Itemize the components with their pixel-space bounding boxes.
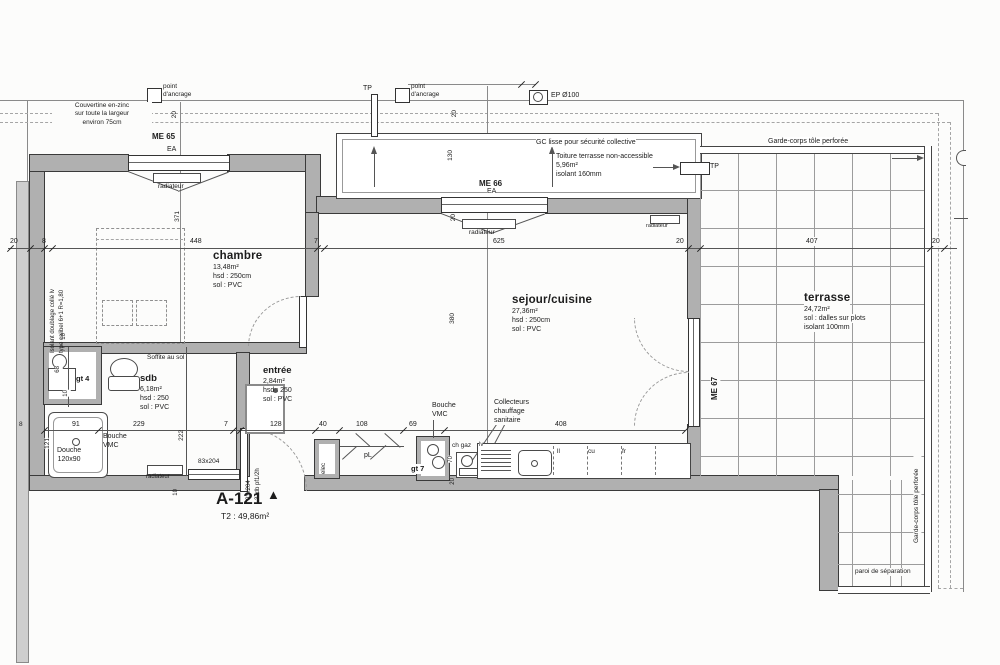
garde-corps-right-label: Garde-corps tôle perforée: [913, 448, 921, 543]
entree-hsd: hsd : 250: [263, 386, 292, 395]
boundary-right: [963, 100, 964, 592]
wall-right-upper: [688, 197, 700, 318]
cu-label: cu: [588, 448, 595, 456]
entree-sol: sol : PVC: [263, 395, 292, 404]
entree-area: 2,84m²: [263, 377, 285, 386]
chambre-sol: sol : PVC: [213, 281, 242, 290]
terrasse-area: 24,72m²: [804, 305, 830, 314]
dim-chain-mid: [44, 430, 685, 431]
ea-label-1: EA: [167, 145, 176, 154]
dim-mid-69: 69: [409, 420, 417, 429]
isolant-line-1: Isolant doublage collé lv: [50, 248, 58, 353]
boiler-dial: [461, 455, 473, 467]
dim-130: 130: [447, 150, 455, 161]
ch-gaz-label: ch gaz: [452, 442, 471, 450]
ep-circle: [533, 92, 543, 102]
boundary-dash-right-2: [950, 122, 951, 588]
dim-371: 371: [174, 211, 182, 222]
dim-top-407: 407: [806, 237, 818, 246]
dim-mid-128: 128: [270, 420, 282, 429]
me65-label: ME 65: [152, 132, 175, 142]
tp-pipe-1: [371, 94, 378, 137]
sdb-sol: sol : PVC: [140, 403, 169, 412]
dim-top-8: 8: [42, 237, 46, 246]
dim-mid-91: 91: [72, 420, 80, 429]
couvertine-note: Couvertine en-zinc sur toute la largeur …: [52, 102, 152, 127]
guardrail-bottom: [838, 586, 930, 594]
douche-label: Douche 120x90: [57, 446, 81, 464]
tp-label-1: TP: [363, 84, 372, 93]
bed-fold-line: [96, 239, 183, 240]
paroi-label: paroi de séparation: [855, 568, 911, 576]
boundary-dash-bottom: [938, 588, 963, 589]
guardrail-right: [924, 146, 932, 592]
lv-label: lv: [479, 442, 483, 450]
slope-arrow-2: [552, 153, 553, 187]
dim-line-entree-v: [186, 347, 187, 476]
fr-label: fr: [622, 448, 626, 456]
dim-mid-408: 408: [555, 420, 567, 429]
anchor-square-2: [395, 88, 410, 103]
apartment-type: T2 : 49,86m²: [221, 511, 269, 522]
gt4-label: gt 4: [76, 374, 89, 384]
sejour-area: 27,36m²: [512, 307, 538, 316]
flow-arrow-right: [892, 158, 918, 159]
apartment-code: A-121: [216, 488, 262, 510]
wall-sejour-top-a: [317, 197, 441, 213]
bouche-vmc-label-2: Bouche VMC: [432, 401, 456, 419]
radiateur-label-3: radiateur: [646, 223, 668, 230]
wall-chambre-top-a: [30, 155, 128, 171]
boundary-tick: [954, 218, 968, 219]
north-marker: ▲: [267, 487, 280, 504]
shower-drain: [72, 438, 80, 446]
boundary-dash-right-1: [938, 113, 939, 588]
me67-swing-arc-bottom: [634, 372, 689, 426]
dim-mid-7: 7: [224, 420, 228, 429]
ep-label: EP Ø100: [551, 91, 579, 100]
boiler-base: [459, 468, 478, 476]
guardrail-top: [700, 146, 930, 154]
counter-divider-4: [655, 446, 656, 475]
radiateur-label-2: radiateur: [469, 229, 495, 237]
placard-front: [340, 446, 404, 447]
placard-door-2a: [370, 445, 386, 460]
dim-10-door: 10: [173, 489, 181, 496]
dishwasher-hatch: [481, 450, 511, 473]
sejour-sol: sol : PVC: [512, 325, 541, 334]
placard-door-1a: [342, 446, 357, 459]
wall-separation-down: [820, 490, 838, 590]
anchor-label-1: point d'ancrage: [163, 83, 191, 100]
tp-pipe-2: [680, 162, 710, 175]
terrasse-isolant: isolant 100mm: [804, 323, 850, 332]
collecteurs-label: Collecteurs chauffage sanitaire: [494, 398, 529, 425]
dim-10-a: 10: [61, 333, 69, 340]
dim-top-20a: 20: [10, 237, 18, 246]
window-me66: [441, 197, 548, 213]
bed-pillow-2: [136, 300, 167, 326]
dim-top-7: 7: [314, 237, 318, 246]
gt7-label: gt 7: [411, 464, 424, 474]
gas-meter-1: [427, 444, 439, 456]
dim-20-me65: 20: [171, 111, 179, 118]
dim-70: 70: [448, 456, 456, 463]
dim-20-tp: 20: [451, 110, 459, 117]
terrasse-name: terrasse: [804, 291, 850, 306]
bed-outline: [96, 228, 185, 344]
dim-mid-40: 40: [319, 420, 327, 429]
wall-partition-chambre-entree: [306, 213, 318, 296]
anchor-square-1: [147, 88, 162, 103]
sink-drain: [531, 460, 538, 467]
gas-meter-2: [432, 456, 445, 469]
window-me65: [128, 155, 230, 171]
elec-label: elec: [321, 448, 329, 474]
bed-pillow-1: [102, 300, 133, 326]
me67-swing-arc-top: [634, 318, 689, 372]
radiateur-me65: [153, 173, 201, 183]
wall-left: [30, 155, 44, 490]
radiateur-label-4: radiateur: [146, 474, 170, 482]
radiateur-me66: [462, 219, 516, 229]
sdb-sliding-door: [188, 469, 240, 480]
anchor-label-2: point d'ancrage: [411, 83, 439, 100]
counter-divider-1: [553, 446, 554, 475]
section-marker: [956, 150, 966, 166]
sdb-hsd: hsd : 250: [140, 394, 169, 403]
french-door-me67: [688, 318, 700, 427]
garde-corps-top-label: Garde-corps tôle perforée: [768, 137, 848, 146]
sejour-name: sejour/cuisine: [512, 293, 592, 308]
door-sdb-label: 83x204: [198, 458, 219, 466]
entree-name: entrée: [263, 365, 292, 377]
leader-bouche-vmc: [433, 420, 434, 438]
ll-label: ll: [557, 448, 560, 456]
dim-mid-108: 108: [356, 420, 368, 429]
bouche-vmc-label-1: Bouche VMC: [103, 432, 127, 450]
dim-top-20c: 20: [932, 237, 940, 246]
dim-top-448: 448: [190, 237, 202, 246]
gc-lisse-label: GC lisse pour sécurité collective: [536, 138, 636, 147]
pl-label: pL: [364, 451, 372, 460]
dim-top-20b: 20: [676, 237, 684, 246]
dim-380: 380: [449, 313, 457, 324]
chambre-area: 13,48m²: [213, 263, 239, 272]
floor-plan: Couvertine en-zinc sur toute la largeur …: [0, 0, 1000, 665]
placard-door-1b: [355, 433, 370, 446]
dim-line-basin-v: [68, 347, 69, 407]
dim-222: 222: [178, 430, 186, 441]
facade-line-top: [0, 100, 963, 101]
toiture-note: Toiture terrasse non-accessible 5,96m² i…: [556, 152, 653, 179]
dim-68: 68: [55, 366, 63, 373]
slope-arrow-1: [374, 153, 375, 187]
sdb-name: sdb: [140, 373, 157, 385]
dim-10-b: 10: [63, 390, 71, 397]
chambre-door-arc: [248, 296, 301, 347]
sdb-area: 6,18m²: [140, 385, 162, 394]
dim-20-kitchen: 20: [450, 478, 458, 485]
radiateur-label-1: radiateur: [158, 183, 184, 191]
dim-8-left: 8: [19, 421, 23, 429]
chambre-hsd: hsd : 250cm: [213, 272, 251, 281]
dim-chain-top: [8, 248, 957, 249]
wc-tank: [108, 376, 140, 391]
dim-top-625: 625: [493, 237, 505, 246]
ea-label-2: EA: [487, 187, 496, 196]
sejour-hsd: hsd : 250cm: [512, 316, 550, 325]
soffite-label: Soffite au sol: [147, 354, 184, 362]
dim-mid-229: 229: [133, 420, 145, 429]
dim-121: 121: [44, 438, 52, 449]
tp-label-2: TP: [710, 162, 719, 171]
dim-20-me66: 20: [450, 214, 458, 221]
wall-sejour-top-b: [546, 197, 688, 213]
me67-label: ME 67: [710, 355, 720, 400]
chambre-name: chambre: [213, 249, 262, 264]
dim-tick: [532, 81, 539, 88]
terrasse-sol: sol : dalles sur plots: [804, 314, 865, 323]
